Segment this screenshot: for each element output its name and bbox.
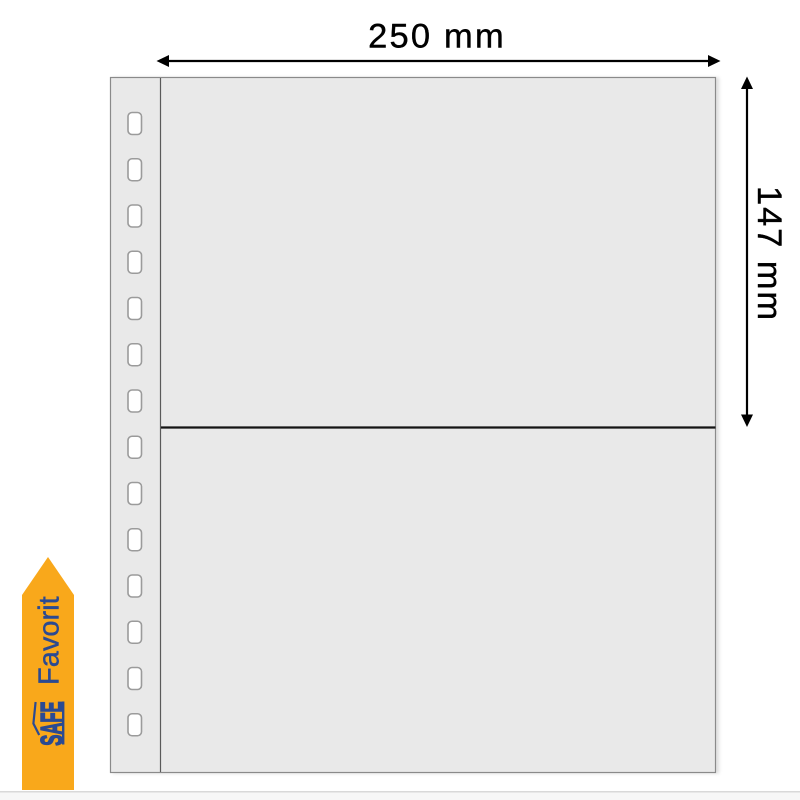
svg-text:Favorit: Favorit [34, 596, 66, 685]
svg-text:147 mm: 147 mm [750, 186, 788, 322]
svg-text:250 mm: 250 mm [368, 18, 506, 56]
